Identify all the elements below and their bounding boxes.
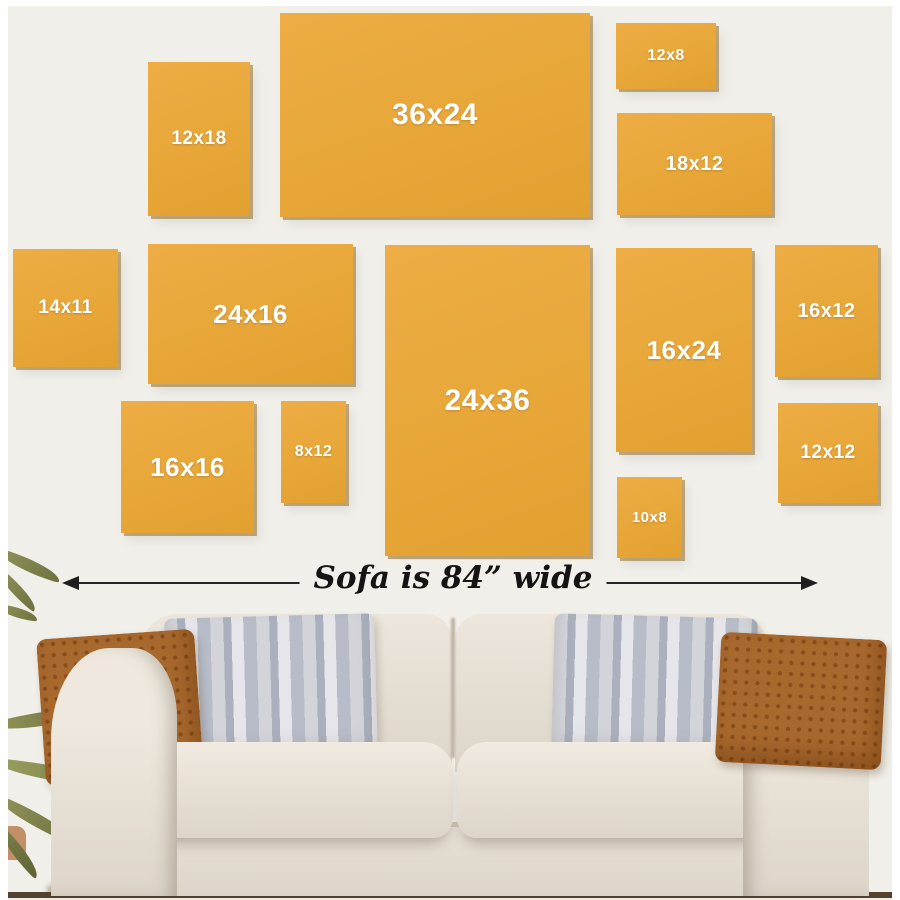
arrow-right-head-icon bbox=[801, 576, 818, 590]
frame-size-label: 10x8 bbox=[632, 509, 667, 526]
frame-size-label: 8x12 bbox=[295, 443, 333, 461]
frame-size-label: 16x16 bbox=[150, 452, 225, 483]
sofa-arm-left bbox=[51, 648, 177, 896]
sofa-width-label: Sofa is 84” wide bbox=[300, 560, 607, 596]
size-guide-image: { "colors": { "wall": "#f1efe9", "frame_… bbox=[0, 0, 900, 900]
frame-size-label: 16x12 bbox=[797, 300, 855, 323]
frame-size-label: 12x12 bbox=[800, 442, 855, 464]
frame-16x24: 16x24 bbox=[616, 248, 752, 452]
frame-size-label: 14x11 bbox=[38, 297, 92, 319]
frame-12x12: 12x12 bbox=[778, 403, 878, 503]
frame-size-label: 24x36 bbox=[445, 384, 531, 418]
frame-14x11: 14x11 bbox=[13, 249, 118, 367]
frame-size-label: 16x24 bbox=[647, 335, 722, 366]
frame-12x18: 12x18 bbox=[148, 62, 250, 216]
sofa-back-seam bbox=[451, 618, 455, 758]
frame-12x8: 12x8 bbox=[616, 23, 716, 89]
rust-pillow-right bbox=[715, 632, 888, 771]
plant-leaf bbox=[8, 548, 63, 583]
frame-8x12: 8x12 bbox=[281, 401, 346, 503]
frame-16x16: 16x16 bbox=[121, 401, 254, 533]
frame-18x12: 18x12 bbox=[617, 113, 772, 215]
wall-scene: 12x1836x2412x818x1214x1124x1624x3616x241… bbox=[8, 6, 892, 900]
sofa bbox=[55, 610, 865, 896]
frame-size-label: 12x18 bbox=[171, 128, 226, 150]
arrow-left-head-icon bbox=[62, 576, 79, 590]
frame-size-label: 36x24 bbox=[392, 98, 478, 132]
frame-size-label: 12x8 bbox=[647, 47, 685, 65]
frame-10x8: 10x8 bbox=[617, 477, 682, 558]
frame-24x16: 24x16 bbox=[148, 244, 353, 384]
frame-36x24: 36x24 bbox=[280, 13, 590, 217]
frame-24x36: 24x36 bbox=[385, 245, 590, 556]
frame-16x12: 16x12 bbox=[775, 245, 878, 377]
frame-size-label: 18x12 bbox=[665, 153, 723, 176]
frame-size-label: 24x16 bbox=[213, 299, 288, 330]
